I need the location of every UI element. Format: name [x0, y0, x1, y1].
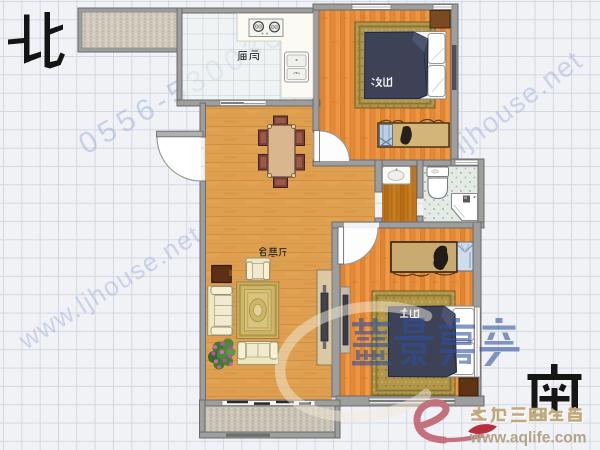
svg-text:www.ljhouse.net: www.ljhouse.net [12, 219, 206, 356]
svg-text:www.aqlife.com: www.aqlife.com [469, 430, 587, 447]
